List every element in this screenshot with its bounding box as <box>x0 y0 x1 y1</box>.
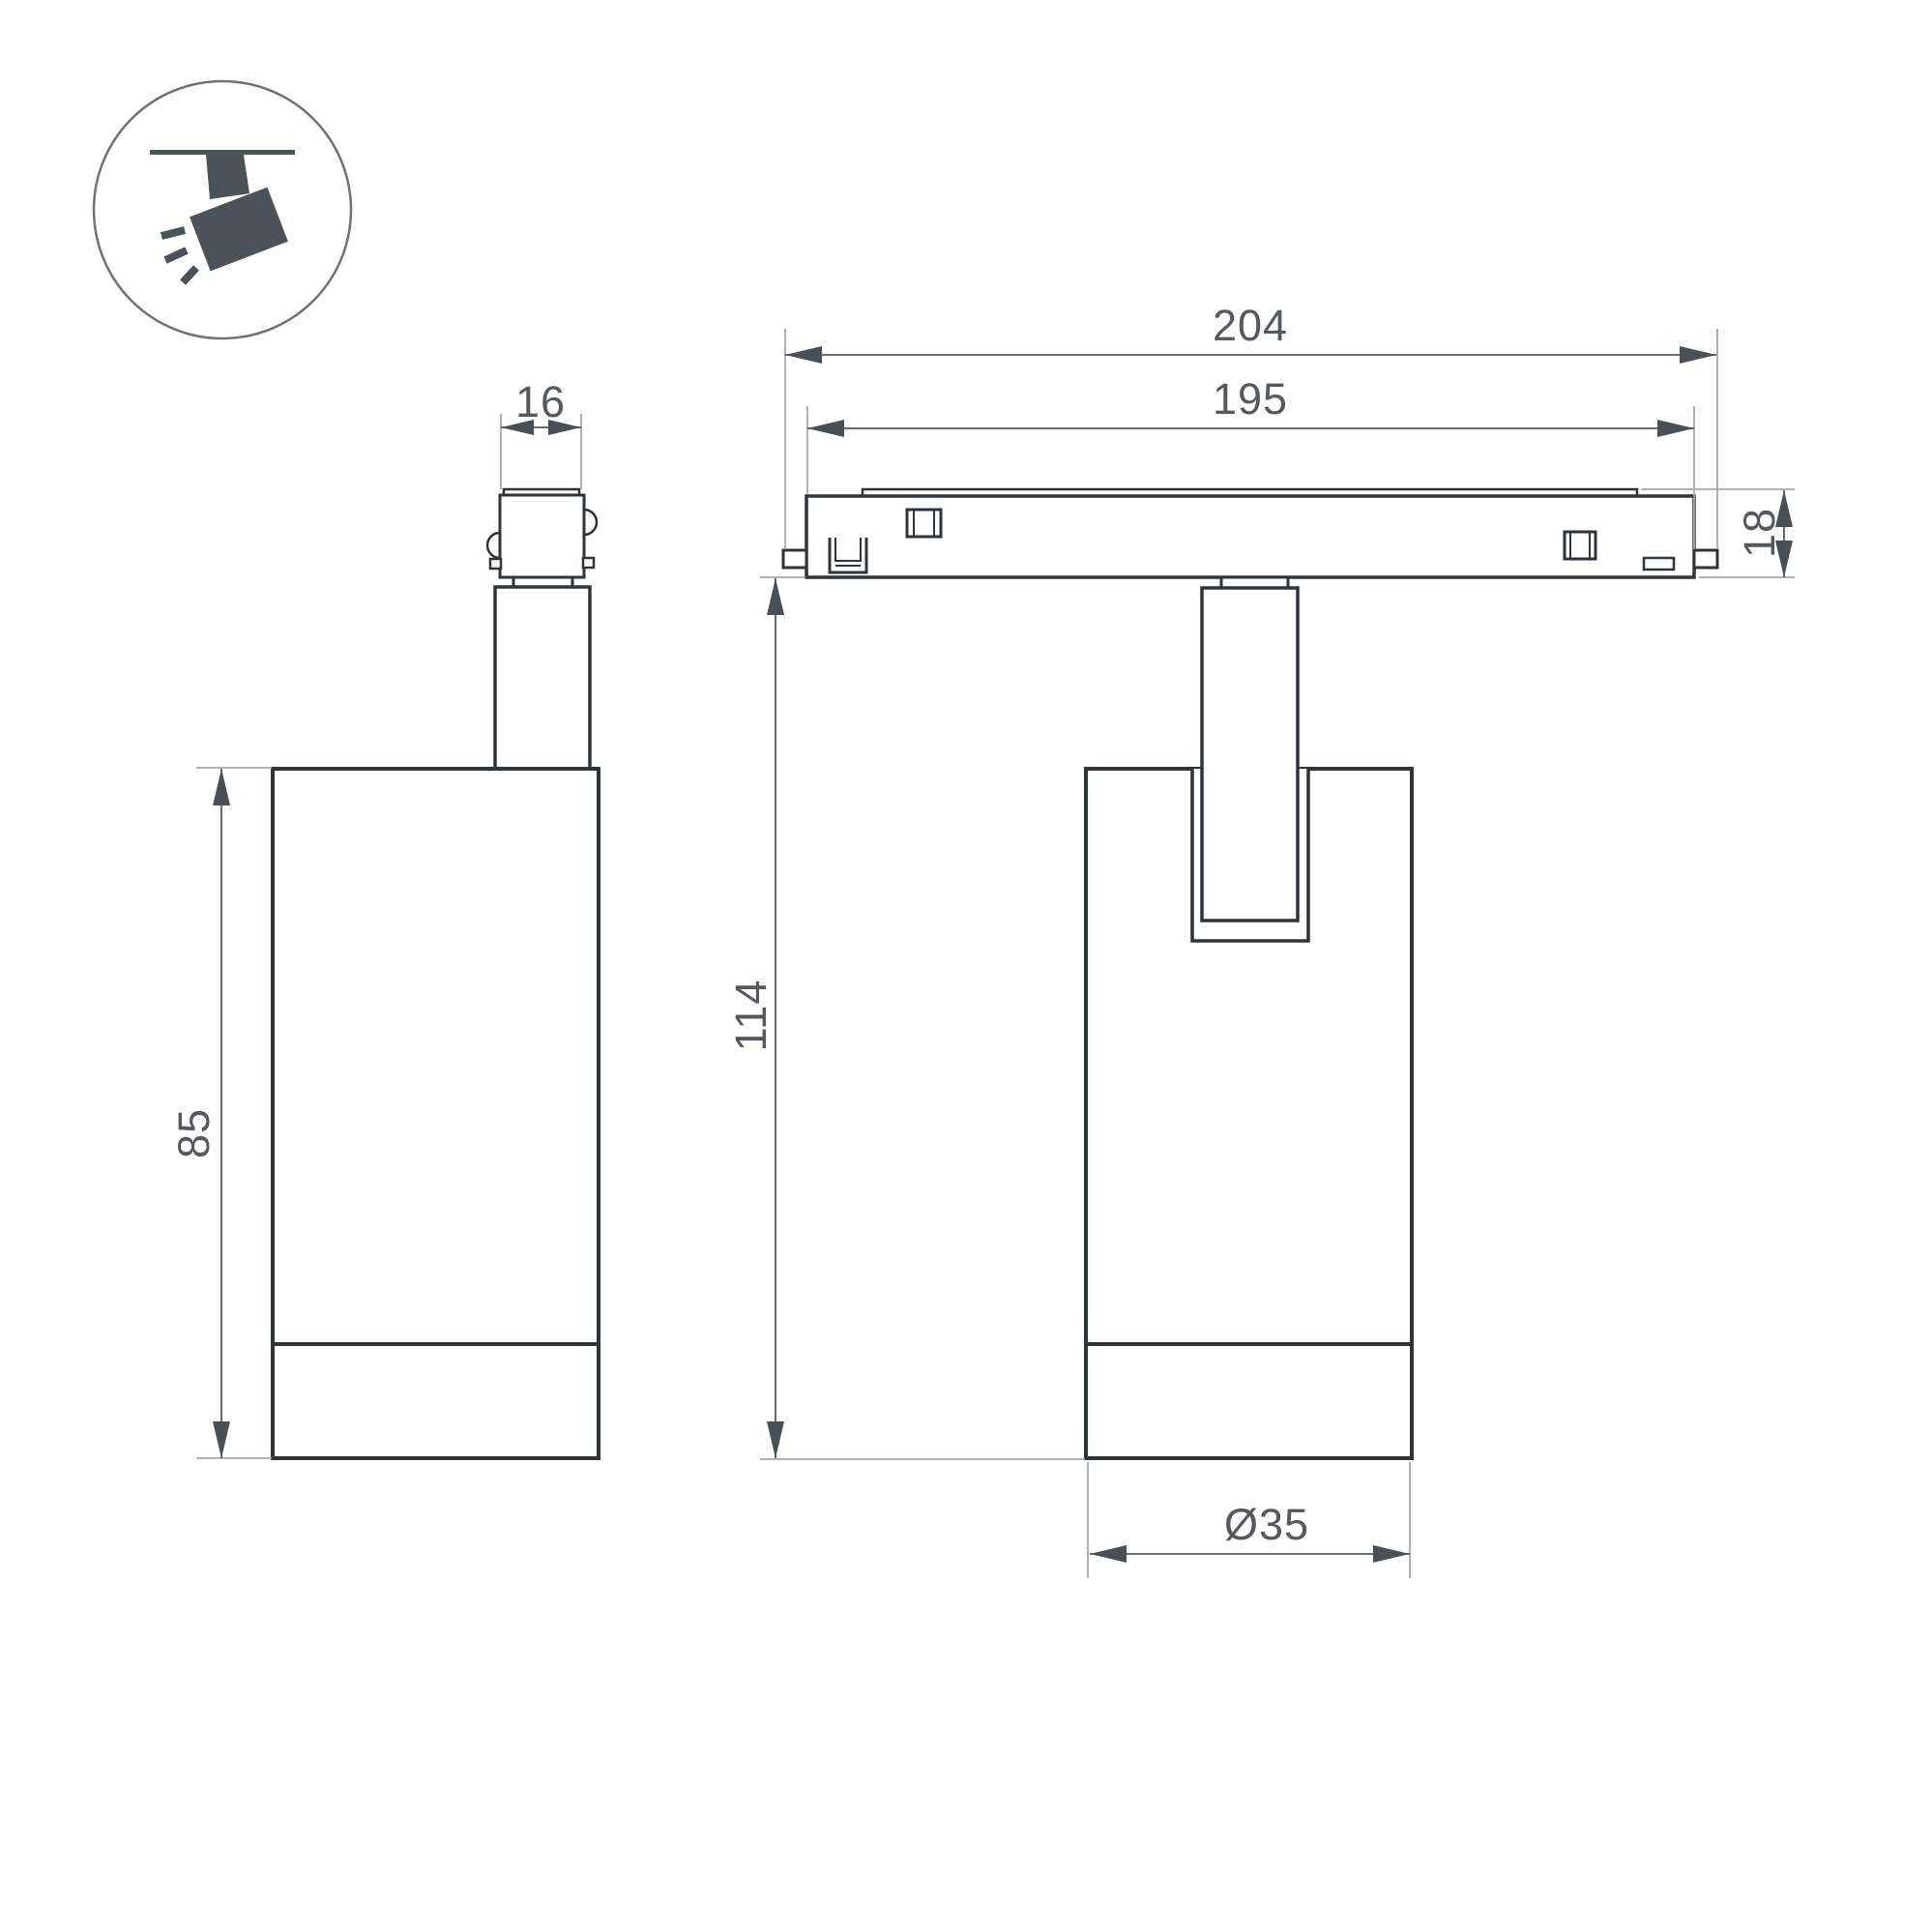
dimension-label: 114 <box>726 980 776 1052</box>
dimension-overall-height: 114 <box>726 577 1085 1459</box>
front-view <box>783 489 1717 1458</box>
adapter-right-lug <box>583 558 594 568</box>
technical-drawing: 16 85 <box>0 0 1932 1932</box>
arrowhead-bottom <box>767 1421 784 1458</box>
dimension-label: 18 <box>1735 508 1784 558</box>
dimension-label: 204 <box>1213 301 1288 350</box>
arrowhead-top <box>213 769 230 805</box>
track-left-end-tab <box>783 550 806 568</box>
side-body <box>273 769 599 1458</box>
arrowhead-bottom <box>213 1421 230 1458</box>
arrowhead-right <box>1657 420 1694 437</box>
arrowhead-left <box>785 346 822 364</box>
arrowhead-right <box>1373 1545 1410 1563</box>
drawing-canvas: 16 85 <box>0 0 1932 1932</box>
track-window-left <box>907 510 941 537</box>
icon-spot-head <box>190 188 288 272</box>
arrowhead-left <box>807 420 844 437</box>
track-slot-right <box>1644 558 1674 570</box>
adapter-body <box>500 495 584 577</box>
dimension-body-height: 85 <box>169 768 272 1458</box>
side-view <box>273 489 599 1458</box>
track-window-right <box>1565 532 1595 559</box>
adapter-left-lug <box>490 559 501 569</box>
arrowhead-left <box>1090 1545 1127 1563</box>
dimension-label: Ø35 <box>1224 1500 1309 1549</box>
icon-light-rays <box>161 230 196 282</box>
arrowhead-right <box>1680 346 1716 364</box>
dimension-label: 16 <box>515 377 566 426</box>
dimension-body-diameter: Ø35 <box>1088 1462 1410 1578</box>
dimension-label: 85 <box>169 1108 219 1158</box>
arrowhead-top <box>767 578 784 615</box>
icon-mount-stem <box>206 155 249 199</box>
dimension-label: 195 <box>1213 374 1288 424</box>
front-stem <box>1202 588 1298 921</box>
adapter-left-spring <box>487 533 500 558</box>
side-stem <box>495 587 590 769</box>
track-right-end-tab <box>1694 550 1717 568</box>
track-spotlight-icon <box>94 81 351 338</box>
adapter-right-spring <box>584 510 597 535</box>
dimension-adapter-width: 16 <box>501 377 581 489</box>
icon-ceiling-bar <box>150 150 295 155</box>
